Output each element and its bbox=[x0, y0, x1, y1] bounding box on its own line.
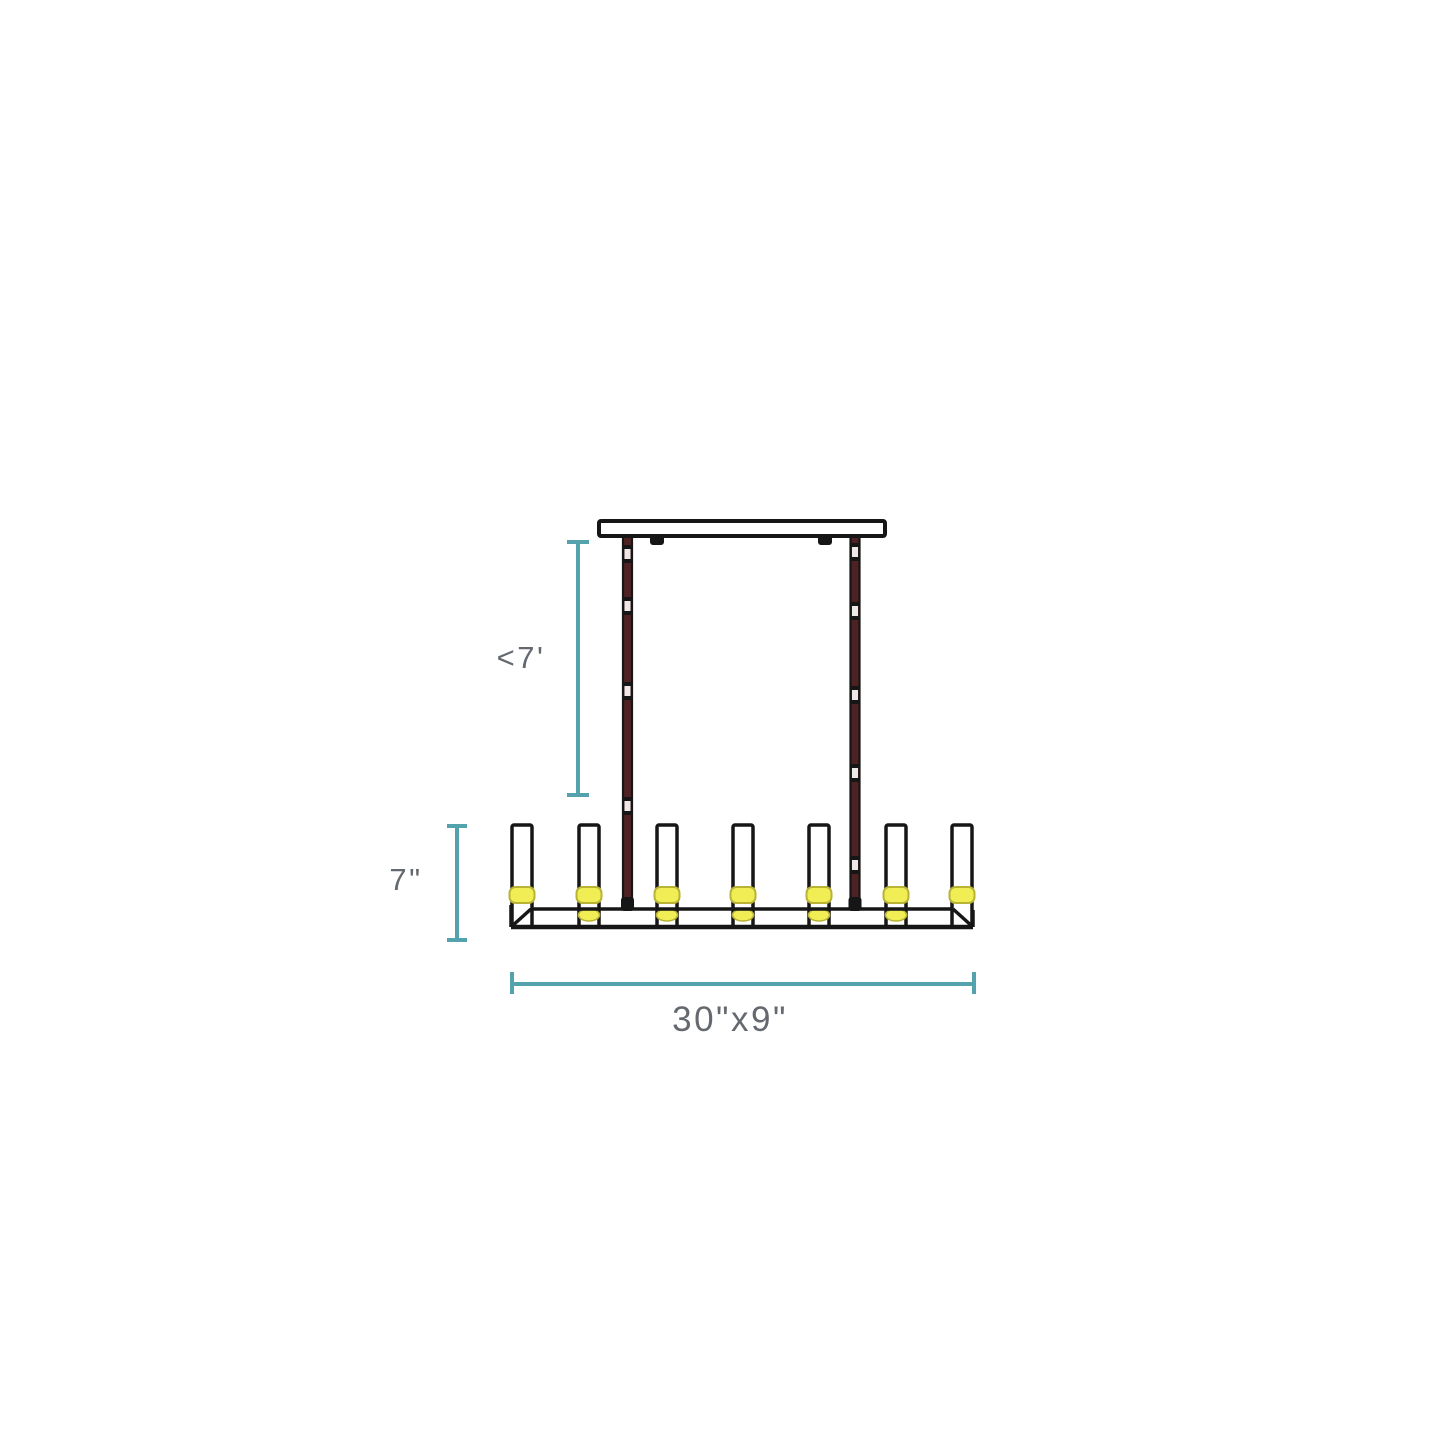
led-lamp-band bbox=[884, 887, 909, 903]
led-lamp-band bbox=[657, 909, 678, 921]
canopy-mount-tab bbox=[650, 534, 664, 545]
led-lamp-band bbox=[579, 909, 600, 921]
canopy-mount-tab bbox=[818, 534, 832, 545]
candle-tube bbox=[510, 825, 535, 927]
suspension-height-label: <7' bbox=[497, 640, 546, 675]
candle-tube bbox=[655, 825, 680, 927]
led-lamp-band bbox=[655, 887, 680, 903]
led-lamp-band bbox=[809, 909, 830, 921]
fixture-width-dimension-line bbox=[512, 972, 974, 994]
fixture-height-dimension-line bbox=[447, 826, 467, 940]
fixture-size-label: 30"x9" bbox=[672, 1000, 788, 1039]
led-lamp-band bbox=[731, 887, 756, 903]
rod-connector-knob bbox=[621, 897, 634, 911]
ceiling-canopy bbox=[599, 521, 885, 545]
led-lamp-band bbox=[886, 909, 907, 921]
suspension-rod-right bbox=[849, 536, 862, 911]
suspension-rod-left bbox=[621, 536, 634, 911]
led-lamp-band bbox=[733, 909, 754, 921]
candle-tube bbox=[884, 825, 909, 927]
rod-connector-knob bbox=[849, 897, 862, 911]
chandelier-dimension-diagram: <7' 7" 30"x9" bbox=[0, 0, 1445, 1445]
diagram-canvas: <7' 7" 30"x9" bbox=[0, 0, 1445, 1445]
fixture-height-label: 7" bbox=[389, 862, 422, 897]
candle-tube bbox=[950, 825, 975, 927]
candle-tube bbox=[731, 825, 756, 927]
led-lamp-band bbox=[950, 887, 975, 903]
candle-tube bbox=[577, 825, 602, 927]
candle-row bbox=[510, 825, 975, 927]
led-lamp-band bbox=[807, 887, 832, 903]
candle-tube bbox=[807, 825, 832, 927]
suspension-height-dimension-line bbox=[567, 542, 589, 795]
led-lamp-band bbox=[577, 887, 602, 903]
led-lamp-band bbox=[510, 887, 535, 903]
